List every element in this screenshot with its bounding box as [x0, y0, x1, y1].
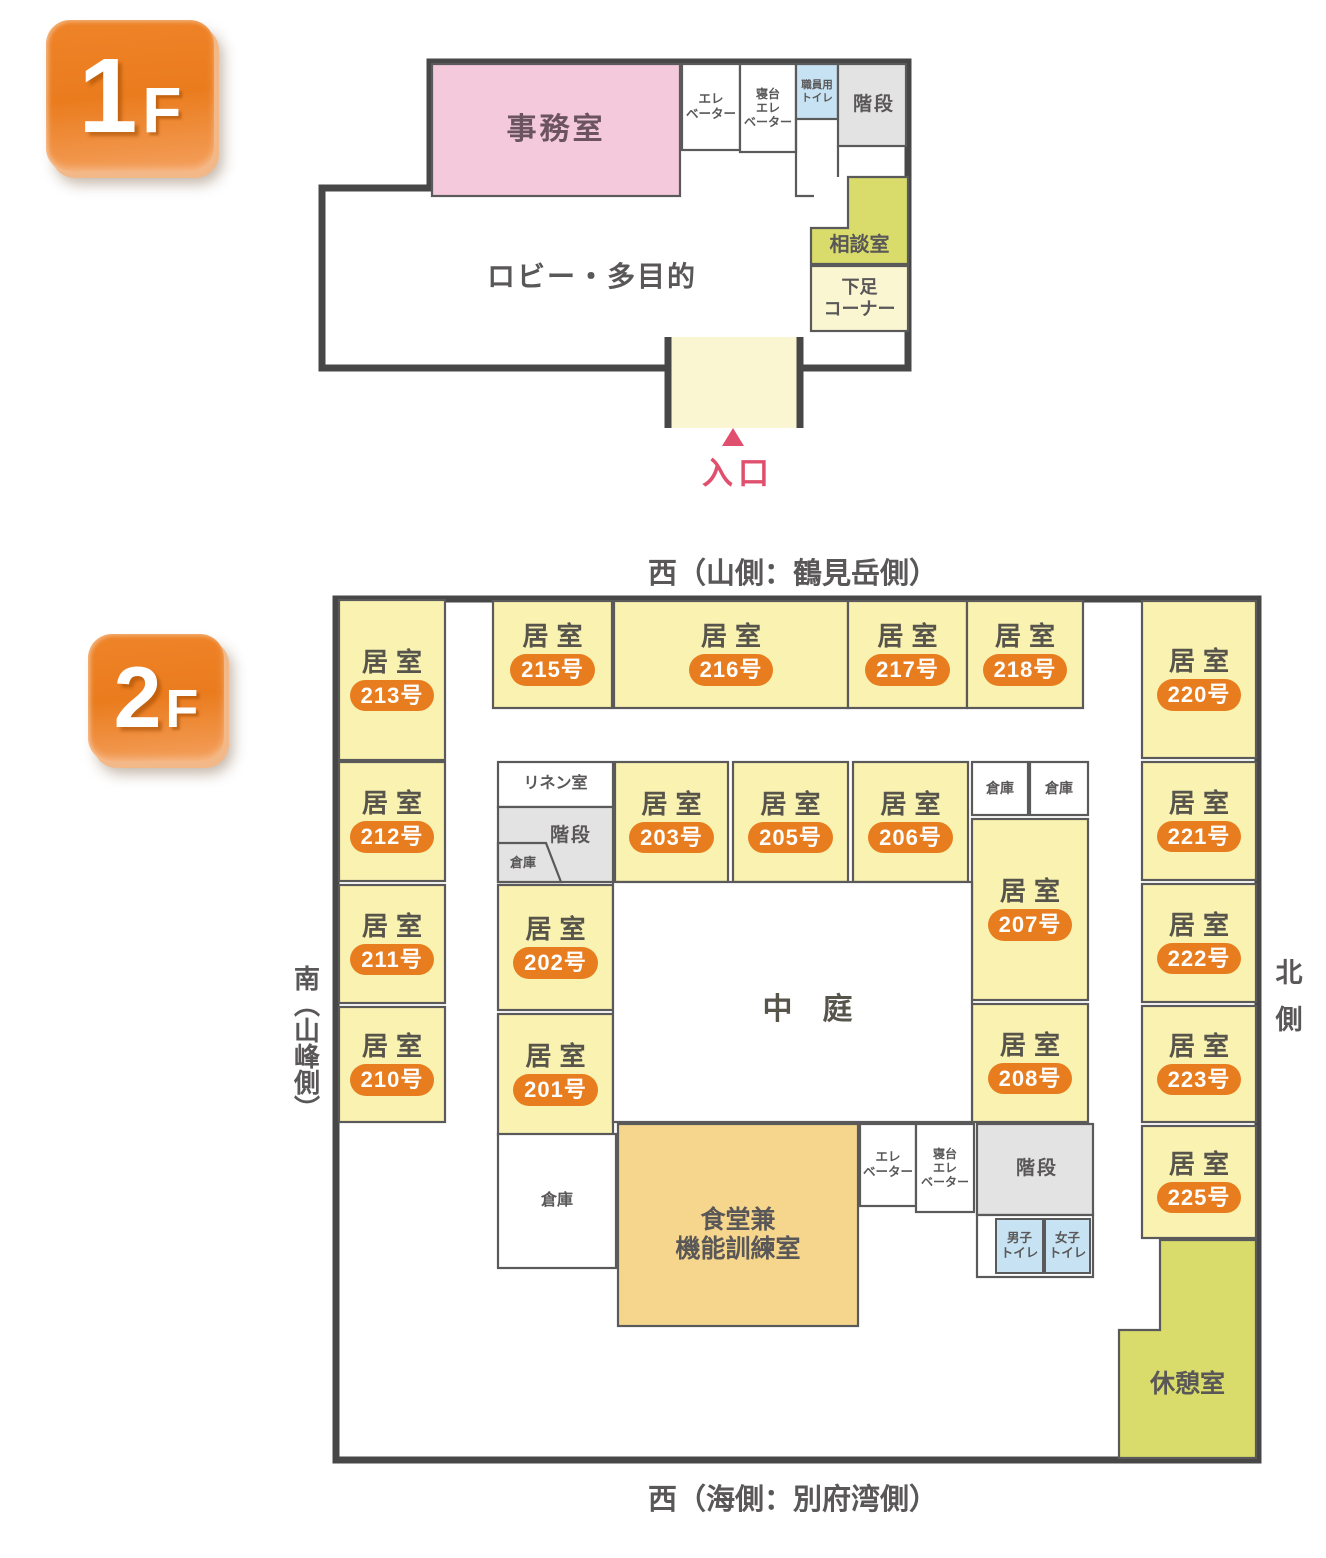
- room-number-badge: 208号: [988, 1063, 1073, 1094]
- stairs-bottom-label: 階段: [977, 1124, 1095, 1215]
- room-name: 居室: [1161, 1151, 1237, 1177]
- direction-label-bottom: 西（海側：別府湾側）: [443, 1476, 1143, 1518]
- room-number-badge: 216号: [689, 654, 774, 685]
- room-number-badge: 210号: [350, 1064, 435, 1095]
- room-label-212: 居室 212号: [339, 762, 445, 881]
- consult-room-label: 相談室: [811, 227, 908, 265]
- entrance-porch-shape: [672, 337, 797, 428]
- stairs-1f-label: 階段: [838, 64, 908, 146]
- storage-pentagon-label: 倉庫: [498, 846, 548, 880]
- floor1-badge: 1 F: [46, 20, 214, 172]
- shoe-corner-label: 下足 コーナー: [811, 266, 908, 331]
- office-room-label: 事務室: [432, 64, 680, 196]
- floor1-badge-suffix: F: [142, 73, 181, 147]
- room-name: 居室: [987, 623, 1063, 649]
- room-number-badge: 222号: [1157, 943, 1242, 974]
- elevator-2f-label: エレ ベーター: [860, 1124, 916, 1206]
- elevator-1f-label: エレ ベーター: [682, 64, 740, 150]
- room-label-220: 居室 220号: [1142, 601, 1256, 758]
- room-name: 居室: [992, 1032, 1068, 1058]
- room-label-215: 居室 215号: [493, 601, 612, 708]
- room-label-225: 居室 225号: [1142, 1126, 1256, 1238]
- bed-elevator-2f-label: 寝台 エレ ベーター: [916, 1124, 974, 1212]
- room-number-badge: 201号: [513, 1074, 598, 1105]
- room-label-218: 居室 218号: [967, 601, 1083, 708]
- dining-training-label: 食堂兼 機能訓練室: [618, 1190, 858, 1280]
- room-name: 居室: [1161, 648, 1237, 674]
- womens-toilet-label: 女子 トイレ: [1045, 1219, 1090, 1273]
- rest-room-label: 休憩室: [1119, 1355, 1256, 1415]
- room-number-badge: 223号: [1157, 1064, 1242, 1095]
- bed-elevator-1f-label: 寝台 エレ ベーター: [740, 64, 796, 152]
- storage-bottom-label: 倉庫: [498, 1134, 616, 1268]
- floorplan-canvas: 1 F 事務室 エレ ベーター 寝台 エレ ベーター 職員用 トイレ 階段 相談…: [0, 0, 1326, 1558]
- floor1-badge-number: 1: [78, 43, 137, 149]
- room-name: 居室: [869, 623, 945, 649]
- room-label-217: 居室 217号: [848, 601, 967, 708]
- room-name: 居室: [354, 790, 430, 816]
- lobby-label: ロビー・多目的: [435, 252, 747, 302]
- room-label-222: 居室 222号: [1142, 884, 1256, 1002]
- room-label-203: 居室 203号: [615, 762, 728, 882]
- room-name: 居室: [1161, 1033, 1237, 1059]
- room-name: 居室: [752, 791, 828, 817]
- room-name: 居室: [517, 1043, 593, 1069]
- room-label-216: 居室 216号: [614, 601, 848, 708]
- storage-a-label: 倉庫: [972, 762, 1028, 815]
- room-number-badge: 217号: [865, 654, 950, 685]
- floor2-badge-number: 2: [114, 655, 162, 741]
- room-label-205: 居室 205号: [733, 762, 848, 882]
- room-number-badge: 225号: [1157, 1182, 1242, 1213]
- room-name: 居室: [354, 913, 430, 939]
- room-number-badge: 203号: [629, 822, 714, 853]
- room-label-206: 居室 206号: [853, 762, 968, 882]
- entrance-arrow-icon: [722, 428, 744, 446]
- room-number-badge: 206号: [868, 822, 953, 853]
- room-number-badge: 220号: [1157, 679, 1242, 710]
- room-label-210: 居室 210号: [339, 1007, 445, 1122]
- floor2-badge: 2 F: [88, 634, 224, 762]
- linen-room-label: リネン室: [498, 762, 613, 807]
- room-number-badge: 212号: [350, 821, 435, 852]
- room-number-badge: 218号: [983, 654, 1068, 685]
- room-name: 居室: [633, 791, 709, 817]
- room-name: 居室: [1161, 912, 1237, 938]
- room-name: 居室: [514, 623, 590, 649]
- room-number-badge: 213号: [350, 680, 435, 711]
- room-number-badge: 202号: [513, 947, 598, 978]
- room-name: 居室: [872, 791, 948, 817]
- floor1-badge-text: 1 F: [78, 43, 181, 149]
- floor2-badge-text: 2 F: [114, 655, 199, 741]
- room-label-223: 居室 223号: [1142, 1006, 1256, 1122]
- room-label-207: 居室 207号: [972, 819, 1088, 1000]
- room-number-badge: 215号: [510, 654, 595, 685]
- room-name: 居室: [517, 916, 593, 942]
- room-name: 居室: [354, 649, 430, 675]
- entrance-label: 入口: [683, 449, 788, 491]
- room-number-badge: 211号: [350, 944, 434, 975]
- room-number-badge: 207号: [988, 909, 1073, 940]
- room-name: 居室: [1161, 790, 1237, 816]
- room-name: 居室: [693, 623, 769, 649]
- room-label-211: 居室 211号: [339, 885, 445, 1003]
- room-label-221: 居室 221号: [1142, 762, 1256, 880]
- storage-b-label: 倉庫: [1030, 762, 1088, 815]
- room-name: 居室: [992, 878, 1068, 904]
- mens-toilet-label: 男子 トイレ: [996, 1219, 1043, 1273]
- courtyard-label: 中庭: [613, 980, 1002, 1040]
- staff-toilet-label: 職員用 トイレ: [796, 64, 838, 119]
- room-label-202: 居室 202号: [498, 885, 613, 1010]
- room-label-213: 居室 213号: [339, 600, 445, 760]
- room-number-badge: 205号: [748, 822, 833, 853]
- room-name: 居室: [354, 1033, 430, 1059]
- room-label-201: 居室 201号: [498, 1014, 613, 1135]
- room-number-badge: 221号: [1157, 821, 1242, 852]
- floor2-badge-suffix: F: [165, 678, 198, 740]
